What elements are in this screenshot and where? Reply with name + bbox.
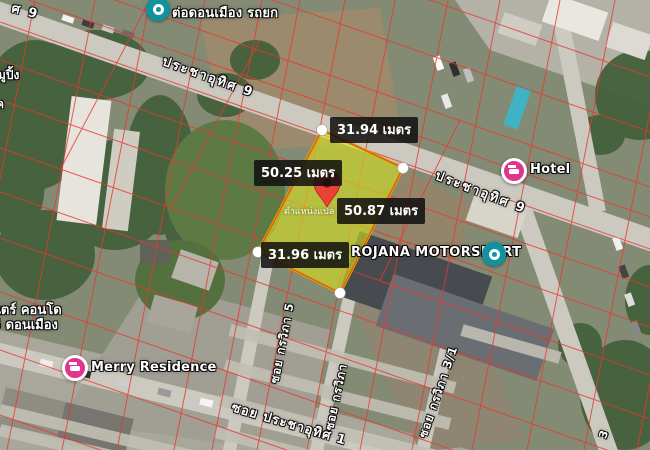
- hotel-label[interactable]: Hotel: [530, 162, 570, 177]
- rojana-motorsport-pin[interactable]: [482, 242, 506, 266]
- partial-label-moo-ping: หมูปิ้ง: [0, 66, 19, 85]
- plot-marker-caption: ตำแหน่งแปล: [284, 204, 334, 218]
- hotel-pin[interactable]: [501, 158, 527, 184]
- merry-residence-pin[interactable]: [62, 355, 88, 381]
- partial-label-kho: ค: [0, 95, 4, 114]
- merry-residence-bed-icon: [70, 366, 80, 371]
- map-canvas[interactable]: 31.94 เมตร 50.25 เมตร 50.87 เมตร 31.96 เ…: [0, 0, 650, 450]
- towing-label[interactable]: ต่อดอนเมือง รถยก: [172, 2, 278, 23]
- towing-pin-icon: [153, 4, 164, 15]
- measurement-left: 50.25 เมตร: [254, 160, 342, 186]
- measurement-top: 31.94 เมตร: [330, 117, 418, 143]
- measurement-bottom: 31.96 เมตร: [261, 242, 349, 268]
- rojana-pin-icon: [489, 249, 500, 260]
- satellite-imagery: [0, 0, 650, 450]
- merry-residence-label[interactable]: Merry Residence: [91, 360, 217, 375]
- partial-label-condo-2: 5 ดอนเมือง: [0, 314, 58, 335]
- hotel-bed-icon: [509, 169, 519, 174]
- measurement-right: 50.87 เมตร: [337, 198, 425, 224]
